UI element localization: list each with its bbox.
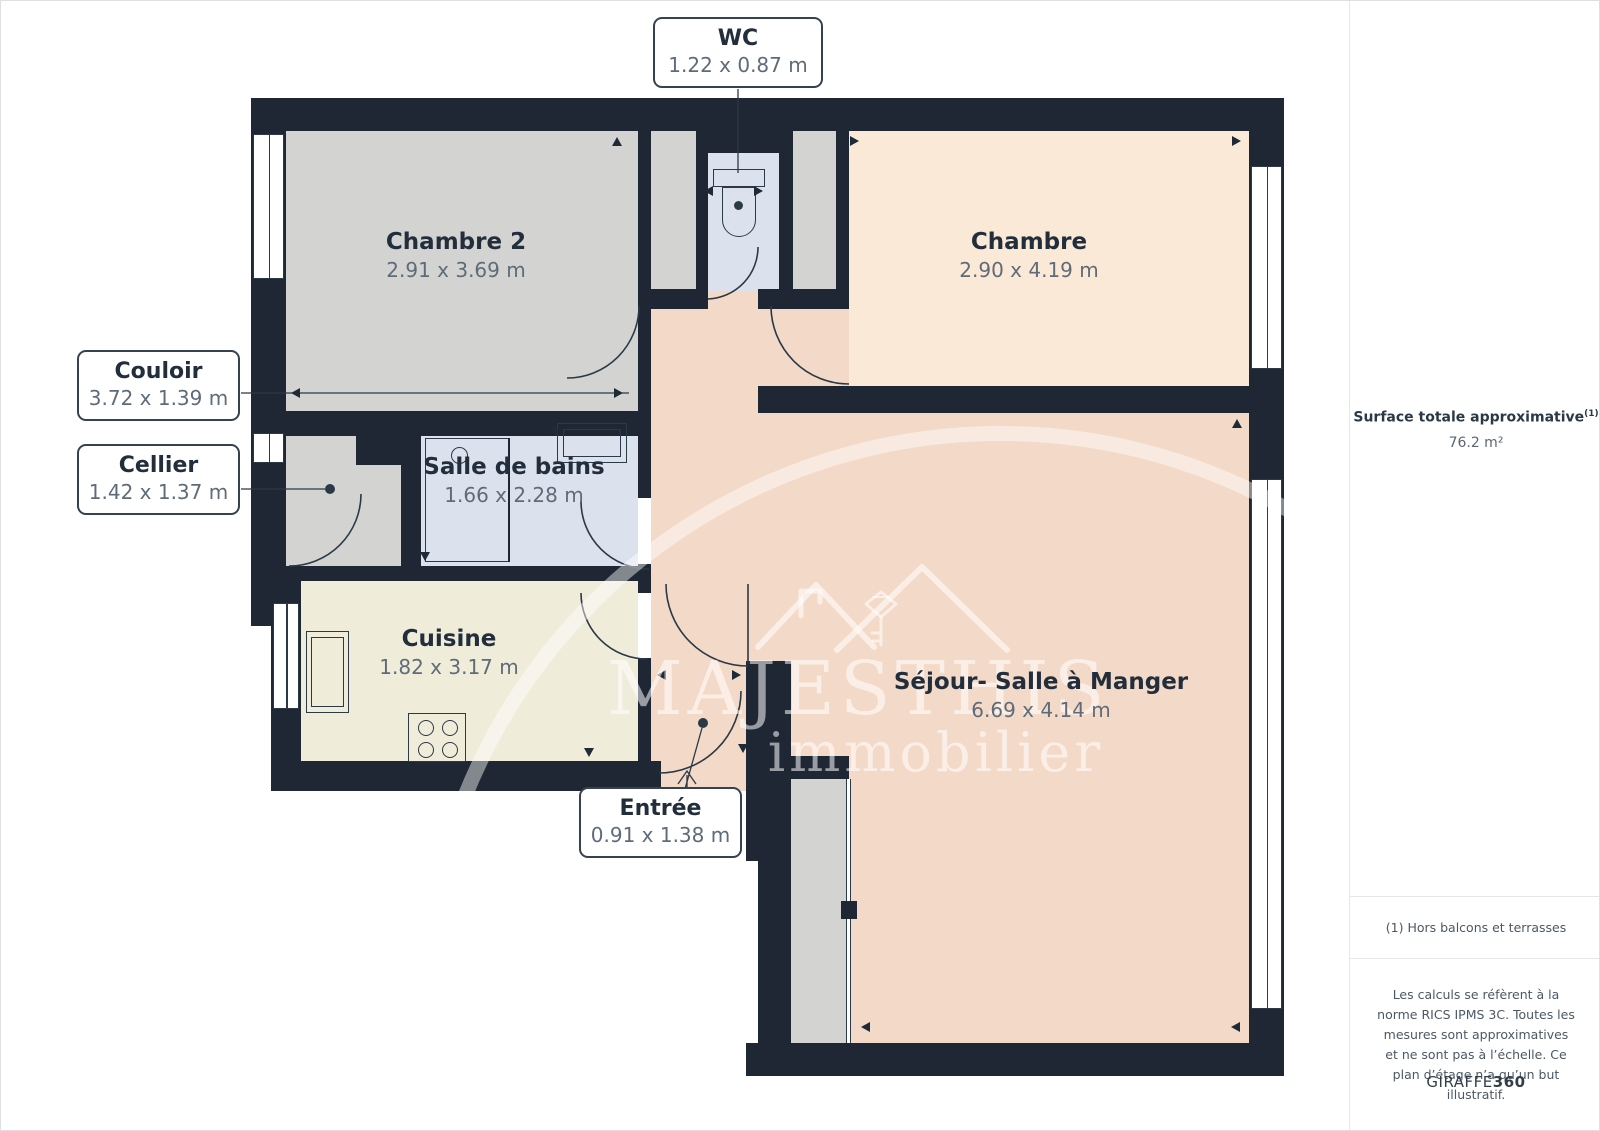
arrow-left-icon [657, 670, 666, 680]
room-dims: 1.82 x 3.17 m [379, 655, 518, 679]
arrow-down-icon [420, 552, 430, 561]
door-arc [581, 501, 649, 569]
door-arc [567, 306, 639, 378]
arrow-up-icon [1232, 419, 1242, 428]
brand-name: GIRAFFE [1426, 1073, 1492, 1091]
room-name: Cellier [85, 453, 232, 478]
leader-dot [325, 484, 335, 494]
room-label-chambre2: Chambre 2 2.91 x 3.69 m [386, 229, 526, 282]
arrow-up-icon [612, 137, 622, 146]
door-arc [771, 306, 849, 384]
arrow-right-icon [754, 186, 763, 196]
room-dims: 1.22 x 0.87 m [661, 53, 815, 77]
room-label-sejour: Séjour- Salle à Manger 6.69 x 4.14 m [894, 669, 1188, 722]
footnote-text: (1) Hors balcons et terrasses [1386, 920, 1566, 935]
leader-lines [241, 89, 738, 807]
room-name: Salle de bains [423, 454, 604, 480]
arrow-left-icon [291, 388, 300, 398]
arrow-right-icon [850, 136, 859, 146]
door-arc [708, 247, 758, 299]
room-dims: 1.66 x 2.28 m [423, 483, 604, 507]
leader-dot [698, 718, 708, 728]
arrow-right-icon [732, 670, 741, 680]
room-dims: 2.91 x 3.69 m [386, 258, 526, 282]
room-dims: 6.69 x 4.14 m [894, 698, 1188, 722]
surface-title-text: Surface totale approximative [1353, 410, 1584, 426]
door-arcs [289, 247, 849, 773]
surface-note-ref: (1) [1584, 409, 1599, 419]
floorplan-page: MAJESTHIS immobilier Chambre 2 2.91 x 3.… [0, 0, 1600, 1131]
arrow-down-icon [738, 744, 748, 753]
arrow-left-icon [704, 186, 713, 196]
callout-cellier: Cellier 1.42 x 1.37 m [77, 444, 240, 515]
callout-couloir: Couloir 3.72 x 1.39 m [77, 350, 240, 421]
callout-entree: Entrée 0.91 x 1.38 m [579, 787, 742, 858]
arrow-left-icon [861, 1022, 870, 1032]
room-dims: 0.91 x 1.38 m [587, 823, 734, 847]
arrow-left-icon [1231, 1022, 1240, 1032]
room-name: Cuisine [379, 626, 518, 652]
info-sidebar: Surface totale approximative(1) 76.2 m² … [1349, 1, 1600, 1131]
room-name: Couloir [85, 359, 232, 384]
plan-linework [1, 1, 1349, 1131]
surface-block: Surface totale approximative(1) 76.2 m² [1350, 409, 1600, 451]
footnote-block: (1) Hors balcons et terrasses [1350, 896, 1600, 959]
arrow-up-icon [549, 424, 559, 433]
callout-wc: WC 1.22 x 0.87 m [653, 17, 823, 88]
giraffe360-logo: GIRAFFE360 [1350, 1073, 1600, 1091]
door-arc [659, 691, 741, 773]
leader-dots [325, 484, 708, 728]
room-name: Entrée [587, 796, 734, 821]
room-label-kitchen: Cuisine 1.82 x 3.17 m [379, 626, 518, 679]
surface-value: 76.2 m² [1350, 435, 1600, 451]
surface-title: Surface totale approximative(1) [1350, 409, 1600, 426]
door-arc [289, 494, 361, 566]
room-dims: 1.42 x 1.37 m [85, 480, 232, 504]
door-arc [666, 584, 748, 666]
room-label-bathroom: Salle de bains 1.66 x 2.28 m [423, 454, 604, 507]
room-name: Chambre 2 [386, 229, 526, 255]
arrow-right-icon [614, 388, 623, 398]
arrow-right-icon [1232, 136, 1241, 146]
arrow-down-icon [584, 748, 594, 757]
room-name: Séjour- Salle à Manger [894, 669, 1188, 695]
room-dims: 3.72 x 1.39 m [85, 386, 232, 410]
room-name: WC [661, 26, 815, 51]
room-label-chambre: Chambre 2.90 x 4.19 m [959, 229, 1098, 282]
room-name: Chambre [959, 229, 1098, 255]
door-arc [581, 593, 647, 659]
brand-suffix: 360 [1493, 1073, 1526, 1091]
room-dims: 2.90 x 4.19 m [959, 258, 1098, 282]
floorplan: MAJESTHIS immobilier Chambre 2 2.91 x 3.… [1, 1, 1349, 1131]
